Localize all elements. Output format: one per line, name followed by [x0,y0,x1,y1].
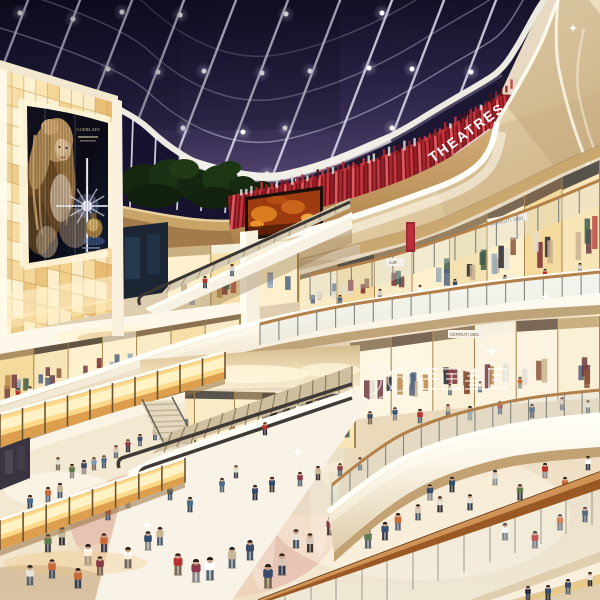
svg-text:AJR: AJR [389,260,397,265]
svg-text:CERRUTI 1881: CERRUTI 1881 [450,332,480,337]
